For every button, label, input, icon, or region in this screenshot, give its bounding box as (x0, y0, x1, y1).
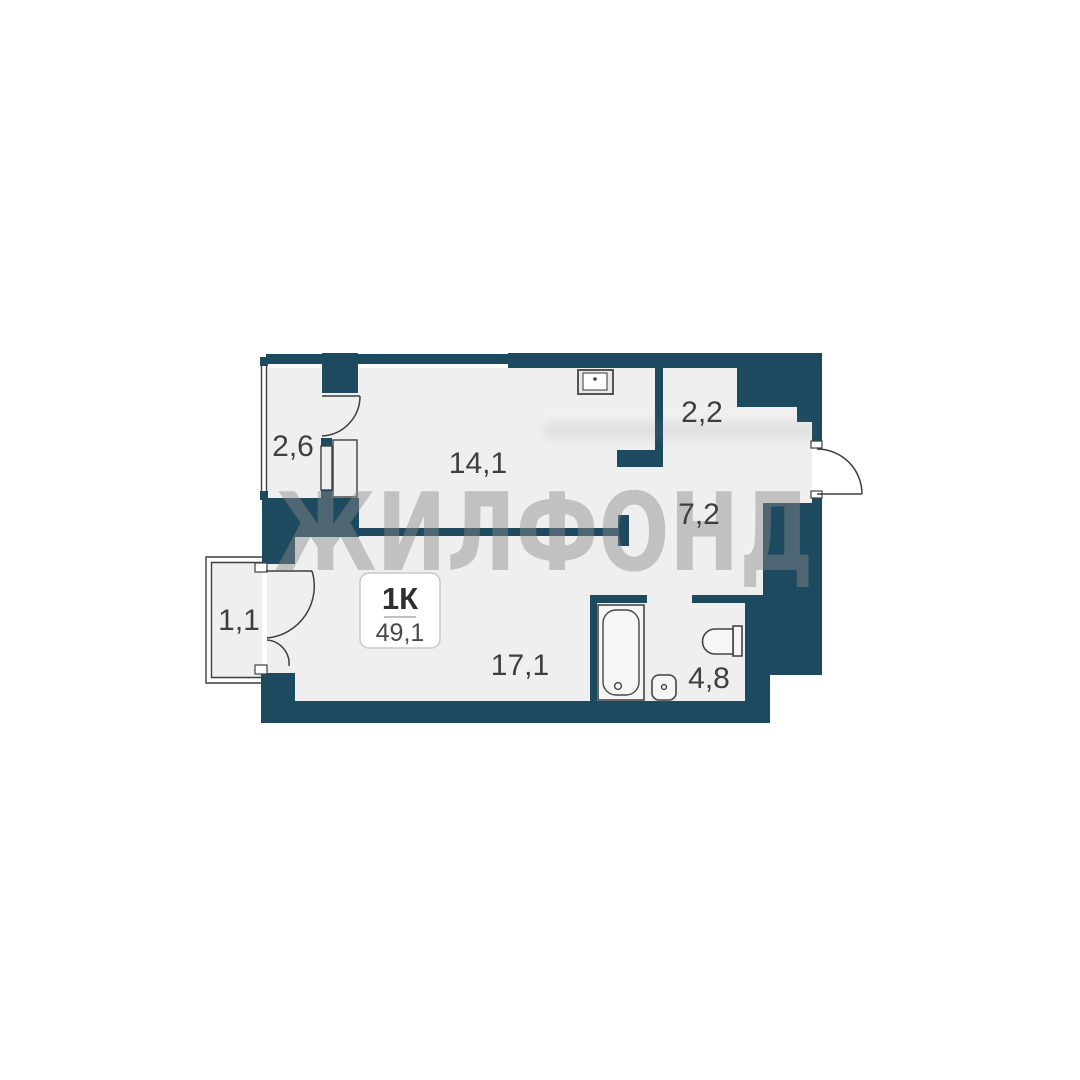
floorplan-page: ЖИЛФОНД 2,6 14,1 2,2 7,2 1,1 17,1 4,8 1К… (0, 0, 1080, 1080)
watermark-text: ЖИЛФОНД (275, 471, 814, 596)
room-area-closet: 2,2 (681, 396, 723, 429)
glazing-end-top (260, 357, 268, 366)
entrance-door (817, 449, 862, 494)
wall-stub-loggia (322, 353, 358, 393)
watermark-shadow-band (545, 422, 813, 439)
wall-top-right (508, 353, 822, 368)
window-block-end-top (321, 438, 332, 446)
entrance-jamb-top (811, 441, 822, 448)
room-area-loggia-top: 2,6 (272, 430, 314, 463)
wall-top-left (266, 354, 508, 364)
unit-type-label: 1К (382, 581, 418, 616)
room-area-hallway: 7,2 (678, 498, 720, 531)
washbasin-icon (652, 675, 676, 700)
balcony-jamb-bottom (255, 665, 267, 674)
unit-info-box: 1К 49,1 (360, 573, 440, 648)
entrance-door-arc (817, 449, 862, 494)
wall-left-lower (261, 673, 295, 703)
glazing-end-bottom (260, 491, 268, 500)
room-area-balcony-bottom: 1,1 (218, 604, 260, 637)
floorplan-drawing: ЖИЛФОНД 2,6 14,1 2,2 7,2 1,1 17,1 4,8 1К… (0, 0, 1080, 1080)
bathtub-icon (598, 605, 644, 700)
unit-total-area: 49,1 (376, 619, 425, 647)
kitchen-sink-icon (578, 370, 613, 394)
wall-toilet-bar (692, 595, 763, 603)
room-area-bathroom: 4,8 (688, 662, 730, 695)
balcony-jamb-top (255, 563, 267, 572)
room-area-kitchen-living: 14,1 (449, 447, 507, 480)
toilet-icon (702, 626, 742, 656)
wall-bottom (261, 701, 770, 723)
room-area-main-room: 17,1 (491, 649, 549, 682)
